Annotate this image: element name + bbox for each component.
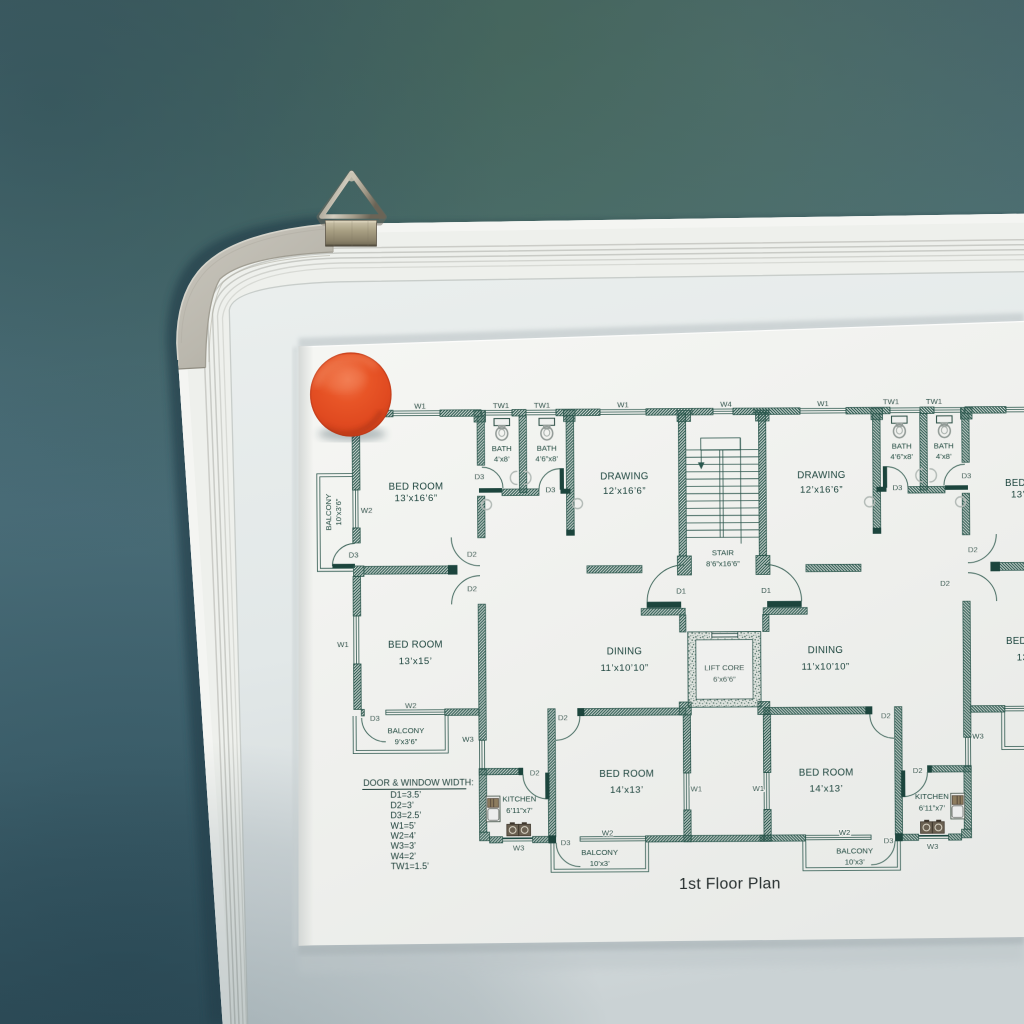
svg-text:13’x15’: 13’x15’ — [399, 656, 433, 667]
svg-text:BALCONY: BALCONY — [581, 848, 618, 857]
svg-text:W4=2’: W4=2’ — [391, 851, 416, 861]
svg-text:D2: D2 — [467, 584, 477, 593]
svg-text:DINING: DINING — [808, 645, 843, 656]
svg-text:W4: W4 — [720, 400, 732, 409]
svg-text:D1: D1 — [761, 586, 771, 595]
svg-text:W3=3’: W3=3’ — [391, 841, 416, 851]
svg-text:6’11”x7’: 6’11”x7’ — [506, 806, 533, 815]
svg-text:BALCONY: BALCONY — [836, 846, 873, 855]
svg-text:D3: D3 — [884, 836, 894, 845]
svg-text:D3=2.5’: D3=2.5’ — [390, 810, 421, 820]
svg-text:13’x16’6”: 13’x16’6” — [394, 493, 437, 504]
svg-text:10’x3’: 10’x3’ — [845, 857, 865, 866]
svg-text:D1=3.5’: D1=3.5’ — [390, 790, 421, 800]
svg-text:D2: D2 — [558, 713, 568, 722]
svg-text:10’x3’6”: 10’x3’6” — [334, 498, 343, 525]
svg-text:W1: W1 — [617, 400, 629, 409]
svg-text:W1: W1 — [691, 784, 703, 793]
svg-text:W1=5’: W1=5’ — [390, 820, 415, 830]
svg-text:BED ROOM: BED ROOM — [599, 769, 654, 780]
svg-text:D3: D3 — [893, 483, 903, 492]
svg-text:BALCONY: BALCONY — [324, 494, 333, 531]
svg-text:4’6”x8’: 4’6”x8’ — [535, 454, 558, 463]
svg-text:W2=4’: W2=4’ — [391, 831, 416, 841]
svg-text:4’6”x8’: 4’6”x8’ — [890, 452, 913, 461]
svg-text:D3: D3 — [474, 472, 484, 481]
svg-text:BED ROOM: BED ROOM — [389, 481, 444, 492]
svg-text:W3: W3 — [972, 732, 984, 741]
svg-text:W1: W1 — [414, 402, 426, 411]
svg-text:BATH: BATH — [537, 444, 557, 453]
svg-text:6’x6’6”: 6’x6’6” — [713, 675, 736, 684]
svg-text:DRAWING: DRAWING — [797, 470, 845, 481]
svg-text:TW1: TW1 — [493, 401, 509, 410]
svg-text:BED ROOM: BED ROOM — [1005, 478, 1024, 489]
svg-text:4’x8’: 4’x8’ — [936, 452, 952, 461]
svg-text:KITCHEN: KITCHEN — [915, 792, 949, 801]
svg-text:D3: D3 — [961, 471, 971, 480]
svg-text:DRAWING: DRAWING — [600, 471, 648, 482]
svg-text:W1: W1 — [817, 399, 829, 408]
svg-text:W1: W1 — [753, 784, 765, 793]
svg-text:W3: W3 — [462, 735, 474, 744]
svg-text:BATH: BATH — [892, 442, 912, 451]
svg-text:D3: D3 — [546, 485, 556, 494]
svg-text:D2: D2 — [881, 711, 891, 720]
svg-text:D2: D2 — [940, 579, 950, 588]
svg-text:W2: W2 — [405, 701, 417, 710]
svg-text:W2: W2 — [361, 506, 373, 515]
svg-text:STAIR: STAIR — [712, 548, 735, 557]
svg-text:BED ROOM: BED ROOM — [388, 639, 443, 650]
svg-text:BATH: BATH — [934, 441, 954, 450]
svg-text:14’x13’: 14’x13’ — [610, 785, 644, 796]
svg-text:10’x3’: 10’x3’ — [590, 859, 610, 868]
svg-text:9’x3’6”: 9’x3’6” — [395, 737, 418, 746]
svg-text:12’x16’6”: 12’x16’6” — [603, 486, 646, 497]
svg-text:D1: D1 — [676, 586, 686, 595]
svg-text:D3: D3 — [561, 838, 571, 847]
svg-text:6’11”x7’: 6’11”x7’ — [919, 803, 946, 812]
svg-text:D2: D2 — [530, 768, 540, 777]
svg-text:D2=3’: D2=3’ — [390, 800, 414, 810]
svg-text:11’x10’10”: 11’x10’10” — [801, 661, 849, 672]
svg-text:D3: D3 — [349, 550, 359, 559]
svg-text:BED ROOM: BED ROOM — [1006, 636, 1024, 647]
svg-text:D2: D2 — [913, 766, 923, 775]
svg-text:W3: W3 — [513, 843, 525, 852]
svg-text:12’x16’6”: 12’x16’6” — [800, 485, 843, 496]
svg-text:TW1: TW1 — [534, 401, 550, 410]
svg-text:TW1=1.5’: TW1=1.5’ — [391, 861, 429, 871]
svg-text:14’x13’: 14’x13’ — [809, 784, 843, 795]
svg-text:DINING: DINING — [607, 646, 642, 657]
svg-text:TW1: TW1 — [926, 397, 942, 406]
svg-text:4’x8’: 4’x8’ — [494, 455, 510, 464]
svg-text:KITCHEN: KITCHEN — [502, 794, 536, 803]
svg-text:D2: D2 — [467, 550, 477, 559]
svg-text:BED ROOM: BED ROOM — [799, 767, 854, 778]
svg-text:LIFT CORE: LIFT CORE — [704, 663, 744, 672]
svg-text:W2: W2 — [602, 828, 614, 837]
svg-text:W2: W2 — [839, 828, 851, 837]
svg-text:13’x16’6”: 13’x16’6” — [1011, 489, 1024, 500]
svg-text:BATH: BATH — [492, 444, 512, 453]
svg-text:D3: D3 — [370, 714, 380, 723]
svg-text:TW1: TW1 — [883, 397, 899, 406]
svg-text:DOOR & WINDOW WIDTH:: DOOR & WINDOW WIDTH: — [363, 777, 473, 788]
svg-text:W3: W3 — [927, 842, 939, 851]
svg-text:BALCONY: BALCONY — [388, 726, 425, 735]
svg-text:11’x10’10”: 11’x10’10” — [600, 663, 648, 674]
svg-text:1st Floor Plan: 1st Floor Plan — [679, 875, 781, 893]
svg-text:8’6”x16’6”: 8’6”x16’6” — [706, 559, 740, 568]
svg-text:13’x15’: 13’x15’ — [1017, 652, 1024, 663]
svg-text:W1: W1 — [337, 640, 349, 649]
svg-text:D2: D2 — [968, 545, 978, 554]
